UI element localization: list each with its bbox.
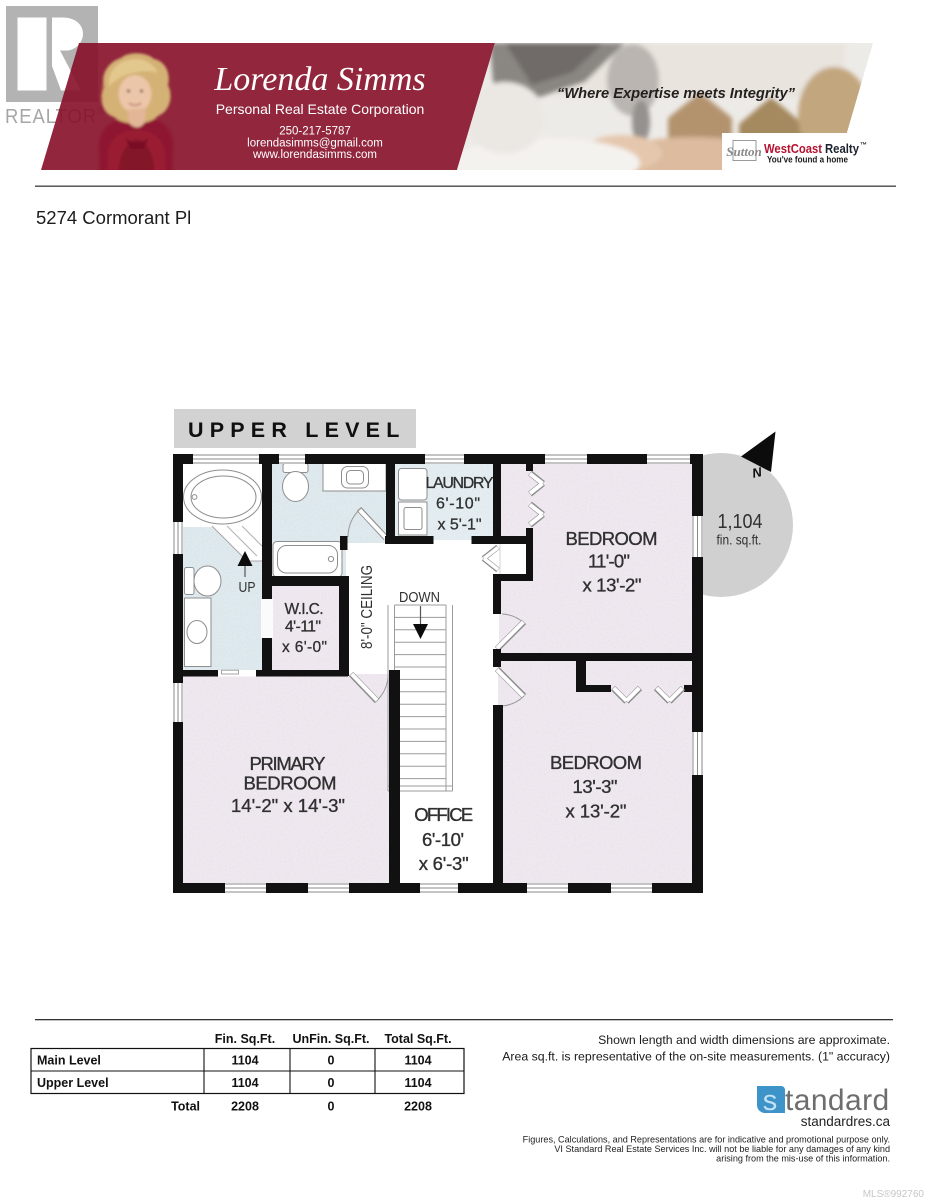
svg-text:Total: Total bbox=[171, 1100, 200, 1114]
svg-text:Fin. Sq.Ft.: Fin. Sq.Ft. bbox=[215, 1032, 275, 1046]
svg-text:1104: 1104 bbox=[404, 1076, 431, 1090]
svg-text:Personal Real Estate Corporati: Personal Real Estate Corporation bbox=[216, 101, 425, 117]
svg-text:x 13'-2": x 13'-2" bbox=[583, 575, 642, 596]
svg-text:x 6'-3": x 6'-3" bbox=[419, 853, 469, 874]
svg-text:OFFICE: OFFICE bbox=[414, 804, 473, 825]
svg-text:6'-10': 6'-10' bbox=[422, 829, 464, 850]
svg-text:DOWN: DOWN bbox=[399, 589, 440, 606]
svg-text:Figures, Calculations, and Rep: Figures, Calculations, and Representatio… bbox=[523, 1135, 890, 1145]
svg-text:0: 0 bbox=[328, 1054, 335, 1068]
svg-text:fin. sq.ft.: fin. sq.ft. bbox=[717, 533, 762, 548]
svg-text:6'-10": 6'-10" bbox=[436, 496, 480, 513]
svg-text:LAUNDRY: LAUNDRY bbox=[426, 475, 494, 492]
svg-text:1,104: 1,104 bbox=[718, 511, 763, 533]
svg-text:13'-3": 13'-3" bbox=[573, 776, 618, 797]
svg-text:2208: 2208 bbox=[404, 1100, 432, 1114]
svg-text:Total Sq.Ft.: Total Sq.Ft. bbox=[384, 1032, 451, 1046]
svg-text:VI Standard Real Estate Servic: VI Standard Real Estate Services Inc. wi… bbox=[554, 1144, 890, 1154]
svg-text:14'-2" x 14'-3": 14'-2" x 14'-3" bbox=[231, 795, 345, 816]
svg-text:x 13'-2": x 13'-2" bbox=[566, 801, 627, 822]
svg-text:W.I.C.: W.I.C. bbox=[285, 601, 324, 618]
svg-text:BEDROOM: BEDROOM bbox=[550, 752, 642, 773]
svg-text:1104: 1104 bbox=[231, 1054, 258, 1068]
svg-text:250-217-5787: 250-217-5787 bbox=[279, 126, 351, 138]
svg-text:“Where Expertise meets Integri: “Where Expertise meets Integrity” bbox=[557, 85, 795, 102]
svg-text:www.lorendasimms.com: www.lorendasimms.com bbox=[252, 149, 377, 161]
svg-text:11'-0": 11'-0" bbox=[588, 551, 630, 572]
svg-text:s: s bbox=[763, 1085, 778, 1117]
svg-text:UnFin. Sq.Ft.: UnFin. Sq.Ft. bbox=[292, 1032, 369, 1046]
svg-text:0: 0 bbox=[328, 1076, 335, 1090]
svg-text:x 6'-0": x 6'-0" bbox=[282, 639, 327, 656]
svg-text:1104: 1104 bbox=[231, 1076, 258, 1090]
svg-text:MLS®992760: MLS®992760 bbox=[863, 1189, 925, 1200]
svg-text:2208: 2208 bbox=[231, 1100, 259, 1114]
svg-text:0: 0 bbox=[328, 1100, 335, 1114]
svg-text:Main Level: Main Level bbox=[37, 1054, 101, 1068]
svg-text:1104: 1104 bbox=[404, 1054, 431, 1068]
svg-text:x 5'-1": x 5'-1" bbox=[438, 517, 482, 534]
svg-text:4'-11": 4'-11" bbox=[285, 619, 321, 636]
svg-text:Sutton: Sutton bbox=[726, 144, 761, 159]
svg-text:arising from the mis-use of th: arising from the mis-use of this informa… bbox=[716, 1154, 890, 1164]
svg-text:Area sq.ft. is representative: Area sq.ft. is representative of the on-… bbox=[502, 1050, 890, 1064]
svg-text:8'-0" CEILING: 8'-0" CEILING bbox=[359, 565, 376, 649]
svg-text:Shown length and width dimensi: Shown length and width dimensions are ap… bbox=[598, 1033, 890, 1047]
svg-text:standardres.ca: standardres.ca bbox=[801, 1114, 891, 1129]
svg-text:BEDROOM: BEDROOM bbox=[244, 773, 337, 794]
svg-text:Lorenda Simms: Lorenda Simms bbox=[213, 61, 425, 98]
svg-text:UP: UP bbox=[239, 579, 256, 596]
svg-text:Upper Level: Upper Level bbox=[37, 1076, 109, 1090]
svg-text:lorendasimms@gmail.com: lorendasimms@gmail.com bbox=[247, 138, 383, 150]
svg-text:5274 Cormorant Pl: 5274 Cormorant Pl bbox=[36, 207, 191, 228]
svg-text:™: ™ bbox=[860, 142, 867, 149]
svg-text:tandard: tandard bbox=[785, 1084, 890, 1117]
svg-text:BEDROOM: BEDROOM bbox=[566, 528, 658, 549]
svg-text:You've found a home: You've found a home bbox=[767, 155, 848, 165]
svg-text:UPPER LEVEL: UPPER LEVEL bbox=[188, 418, 406, 442]
svg-text:PRIMARY: PRIMARY bbox=[250, 753, 326, 774]
